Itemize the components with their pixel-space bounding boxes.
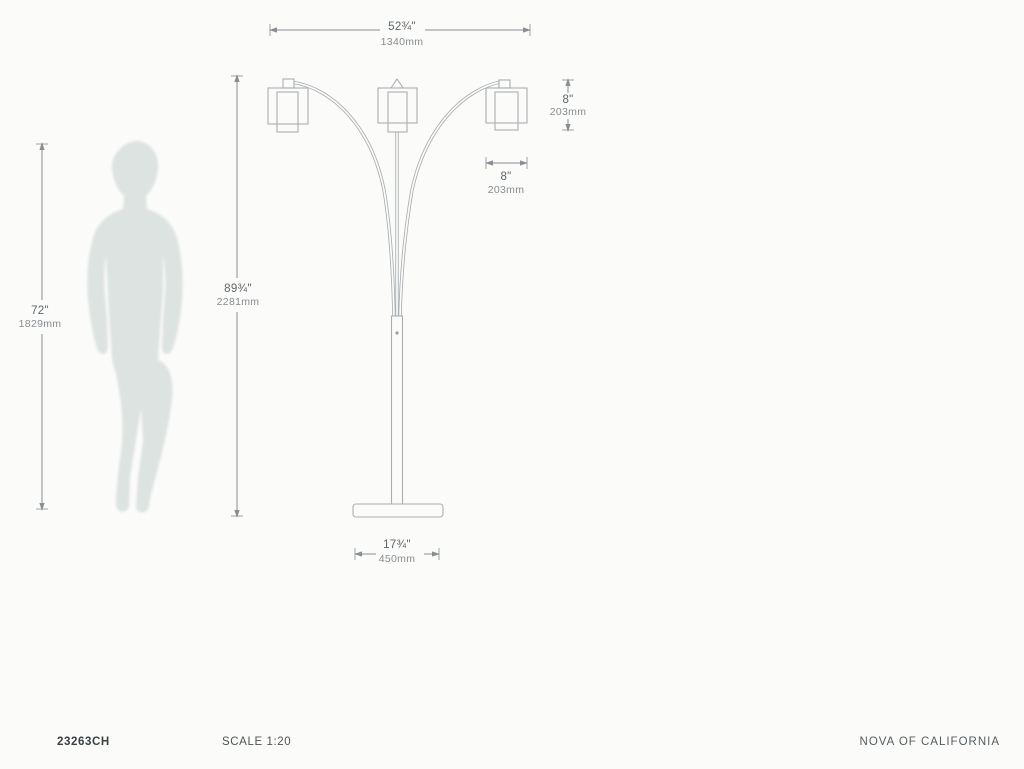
- dim-shade-height-mm: 203mm: [550, 106, 587, 118]
- lamp-base: [353, 504, 443, 517]
- dim-human-height-mm: 1829mm: [19, 318, 62, 330]
- dim-overall-width-inches: 52¾": [388, 21, 416, 33]
- lamp-shade-right: [486, 80, 527, 130]
- dim-shade-height-inches: 8": [562, 94, 573, 106]
- dim-base-width-mm: 450mm: [379, 553, 416, 565]
- lamp-switch-dot: [395, 331, 398, 334]
- lamp-pole: [392, 316, 403, 506]
- human-silhouette: [87, 141, 182, 513]
- product-sku: 23263CH: [57, 736, 110, 748]
- dim-shade-width-mm: 203mm: [488, 184, 525, 196]
- dim-human-height-inches: 72": [31, 305, 49, 317]
- brand-name: NOVA OF CALIFORNIA: [860, 736, 1000, 748]
- lamp-drawing: [268, 79, 527, 517]
- dim-lamp-height-inches: 89¾": [224, 283, 252, 295]
- dim-lamp-height-mm: 2281mm: [217, 296, 260, 308]
- technical-drawing-canvas: [0, 0, 1024, 769]
- dim-base-width-inches: 17¾": [383, 539, 411, 551]
- dim-overall-width-mm: 1340mm: [381, 36, 424, 48]
- lamp-shade-left: [268, 79, 308, 132]
- dim-shade-width-line: [485, 157, 528, 169]
- drawing-scale: SCALE 1:20: [222, 736, 291, 748]
- spec-sheet: 52¾" 1340mm 8" 203mm 8" 203mm 89¾" 2281m…: [0, 0, 1024, 769]
- lamp-shade-middle: [378, 79, 417, 132]
- dim-shade-width-inches: 8": [500, 171, 511, 183]
